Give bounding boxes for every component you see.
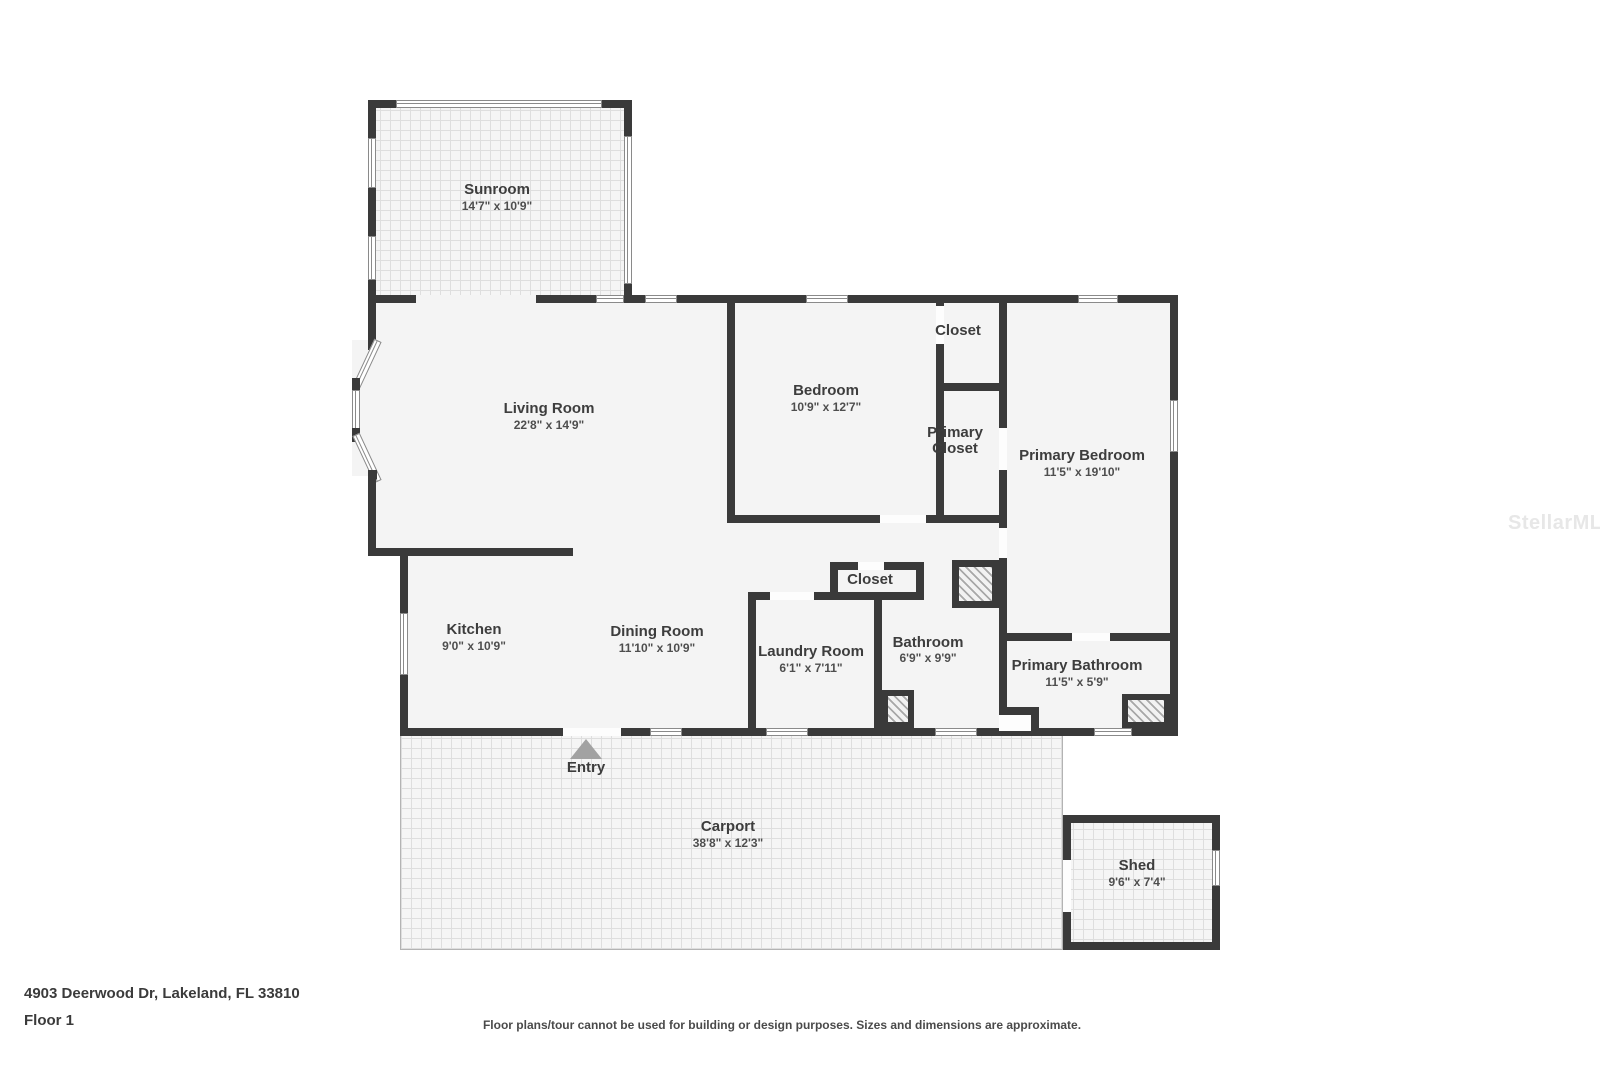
window bbox=[766, 728, 808, 736]
room-label-kitchen: Kitchen bbox=[446, 622, 501, 638]
room-dims-bedroom: 10'9" x 12'7" bbox=[791, 400, 861, 414]
window bbox=[645, 295, 677, 303]
utility-fixture-hatch bbox=[952, 560, 999, 608]
hall-closet-door-opening bbox=[858, 562, 884, 570]
room-dims-kitchen: 9'0" x 10'9" bbox=[442, 639, 506, 653]
room-dims-primary-bathroom: 11'5" x 5'9" bbox=[1045, 675, 1108, 689]
window bbox=[596, 295, 624, 303]
room-dims-living-room: 22'8" x 14'9" bbox=[514, 418, 584, 432]
wall bbox=[1170, 295, 1178, 736]
entry-door-opening bbox=[563, 728, 621, 736]
room-label-dining-room: Dining Room bbox=[610, 624, 703, 640]
room-label-sunroom: Sunroom bbox=[464, 182, 530, 198]
room-label-carport: Carport bbox=[701, 819, 755, 835]
window bbox=[1212, 850, 1220, 886]
wall bbox=[727, 515, 1007, 523]
wall bbox=[727, 295, 735, 523]
room-dims-shed: 9'6" x 7'4" bbox=[1108, 875, 1165, 889]
wall bbox=[1031, 715, 1039, 736]
room-label-hall-closet: Closet bbox=[847, 572, 893, 588]
wall bbox=[748, 592, 756, 736]
window bbox=[396, 100, 602, 108]
primary-bedroom-door-opening bbox=[999, 528, 1007, 558]
room-dims-laundry-room: 6'1" x 7'11" bbox=[779, 661, 842, 675]
room-label-shed: Shed bbox=[1119, 858, 1156, 874]
window bbox=[368, 236, 376, 280]
window bbox=[806, 295, 848, 303]
address-text: 4903 Deerwood Dr, Lakeland, FL 33810 bbox=[24, 985, 300, 1002]
room-label-living-room: Living Room bbox=[504, 401, 595, 417]
niche-opening bbox=[999, 715, 1031, 731]
room-label-primary-closet: Primary Closet bbox=[917, 425, 993, 457]
entry-label: Entry bbox=[567, 760, 605, 776]
window bbox=[624, 136, 632, 284]
window bbox=[935, 728, 977, 736]
shed-door-opening bbox=[1063, 860, 1071, 912]
room-label-bathroom: Bathroom bbox=[893, 635, 964, 651]
floor-label: Floor 1 bbox=[24, 1012, 74, 1029]
wall bbox=[936, 383, 1007, 391]
floor-plan: Sunroom 14'7" x 10'9" Living Room 22'8" … bbox=[0, 0, 1600, 1066]
window bbox=[650, 728, 682, 736]
wall bbox=[368, 548, 573, 556]
window bbox=[400, 613, 408, 675]
watermark: StellarMLS bbox=[1508, 512, 1600, 535]
room-label-primary-bathroom: Primary Bathroom bbox=[1012, 658, 1143, 674]
bay-window-center bbox=[352, 390, 360, 430]
window bbox=[368, 138, 376, 188]
bathroom-fixture-hatch bbox=[882, 690, 914, 728]
laundry-door-opening bbox=[770, 592, 814, 600]
disclaimer-text: Floor plans/tour cannot be used for buil… bbox=[483, 1018, 1081, 1032]
window bbox=[1094, 728, 1132, 736]
wall bbox=[1007, 707, 1039, 715]
room-dims-bathroom: 6'9" x 9'9" bbox=[899, 651, 956, 665]
window bbox=[1170, 400, 1178, 452]
room-dims-dining-room: 11'10" x 10'9" bbox=[619, 641, 695, 655]
room-dims-carport: 38'8" x 12'3" bbox=[693, 836, 763, 850]
room-dims-primary-bedroom: 11'5" x 19'10" bbox=[1044, 465, 1120, 479]
primary-closet-door-opening bbox=[999, 428, 1007, 470]
room-label-bedroom: Bedroom bbox=[793, 383, 859, 399]
wall bbox=[830, 592, 924, 600]
wall bbox=[1063, 815, 1220, 823]
primary-bathroom-door-opening bbox=[1072, 633, 1110, 641]
room-label-closet: Closet bbox=[935, 323, 981, 339]
room-label-laundry-room: Laundry Room bbox=[758, 644, 864, 660]
wall bbox=[874, 600, 882, 736]
entry-arrow-icon bbox=[570, 739, 602, 759]
wall bbox=[368, 472, 376, 556]
room-label-primary-bedroom: Primary Bedroom bbox=[1019, 448, 1145, 464]
bedroom-door-opening bbox=[880, 515, 926, 523]
primary-bathroom-fixture-hatch bbox=[1122, 694, 1170, 728]
room-dims-sunroom: 14'7" x 10'9" bbox=[462, 199, 532, 213]
window bbox=[1078, 295, 1118, 303]
wall bbox=[1063, 942, 1220, 950]
wall bbox=[999, 295, 1007, 736]
